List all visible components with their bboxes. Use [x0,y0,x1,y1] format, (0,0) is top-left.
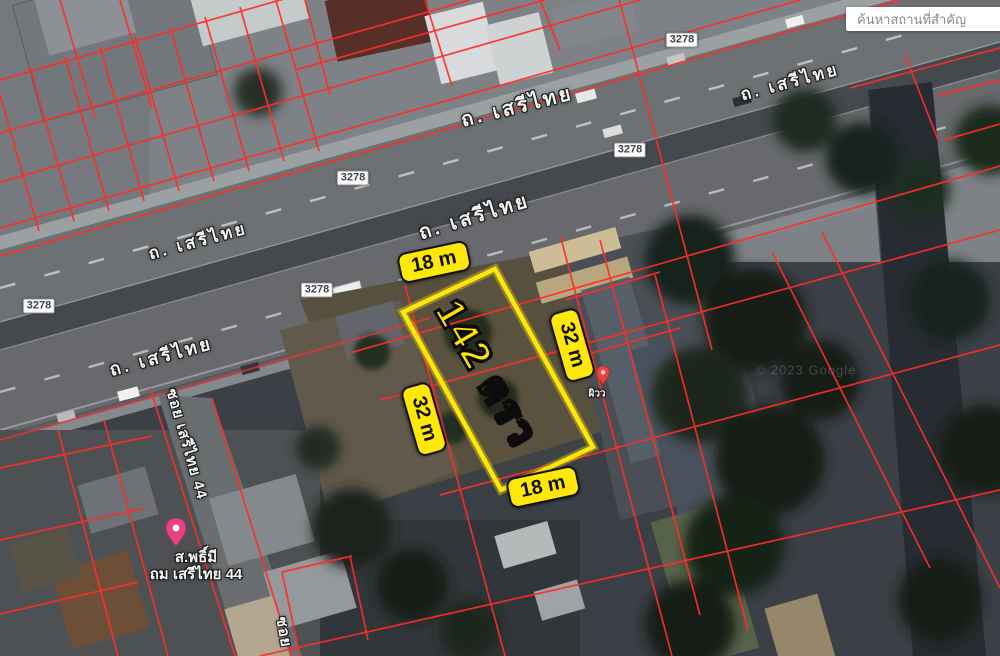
route-badge-3278-5: 3278 [23,299,55,314]
poi-label-line1: ส.พธิ์มี [150,549,243,566]
soi-label-partial: ซอย [269,615,298,650]
route-badge-3278-4: 3278 [301,283,333,298]
poi-label-line2: ถม เสรีไทย 44 [150,566,243,583]
route-badge-3278-2: 3278 [614,143,646,158]
poi-label[interactable]: ส.พธิ์มี ถม เสรีไทย 44 [150,549,243,583]
small-poi-pin-icon[interactable] [596,366,610,384]
route-badge-3278-1: 3278 [666,33,698,48]
map-copyright-watermark: © 2023 Google [756,363,857,378]
small-poi-label: ผิวว [588,387,605,402]
search-input[interactable] [846,7,1000,31]
map-viewport[interactable]: ถ. เสรีไทย ถ. เสรีไทย ถ. เสรีไทย ถ. เสรี… [0,0,1000,656]
poi-pin-icon[interactable] [165,518,187,546]
route-badge-3278-3: 3278 [337,171,369,186]
